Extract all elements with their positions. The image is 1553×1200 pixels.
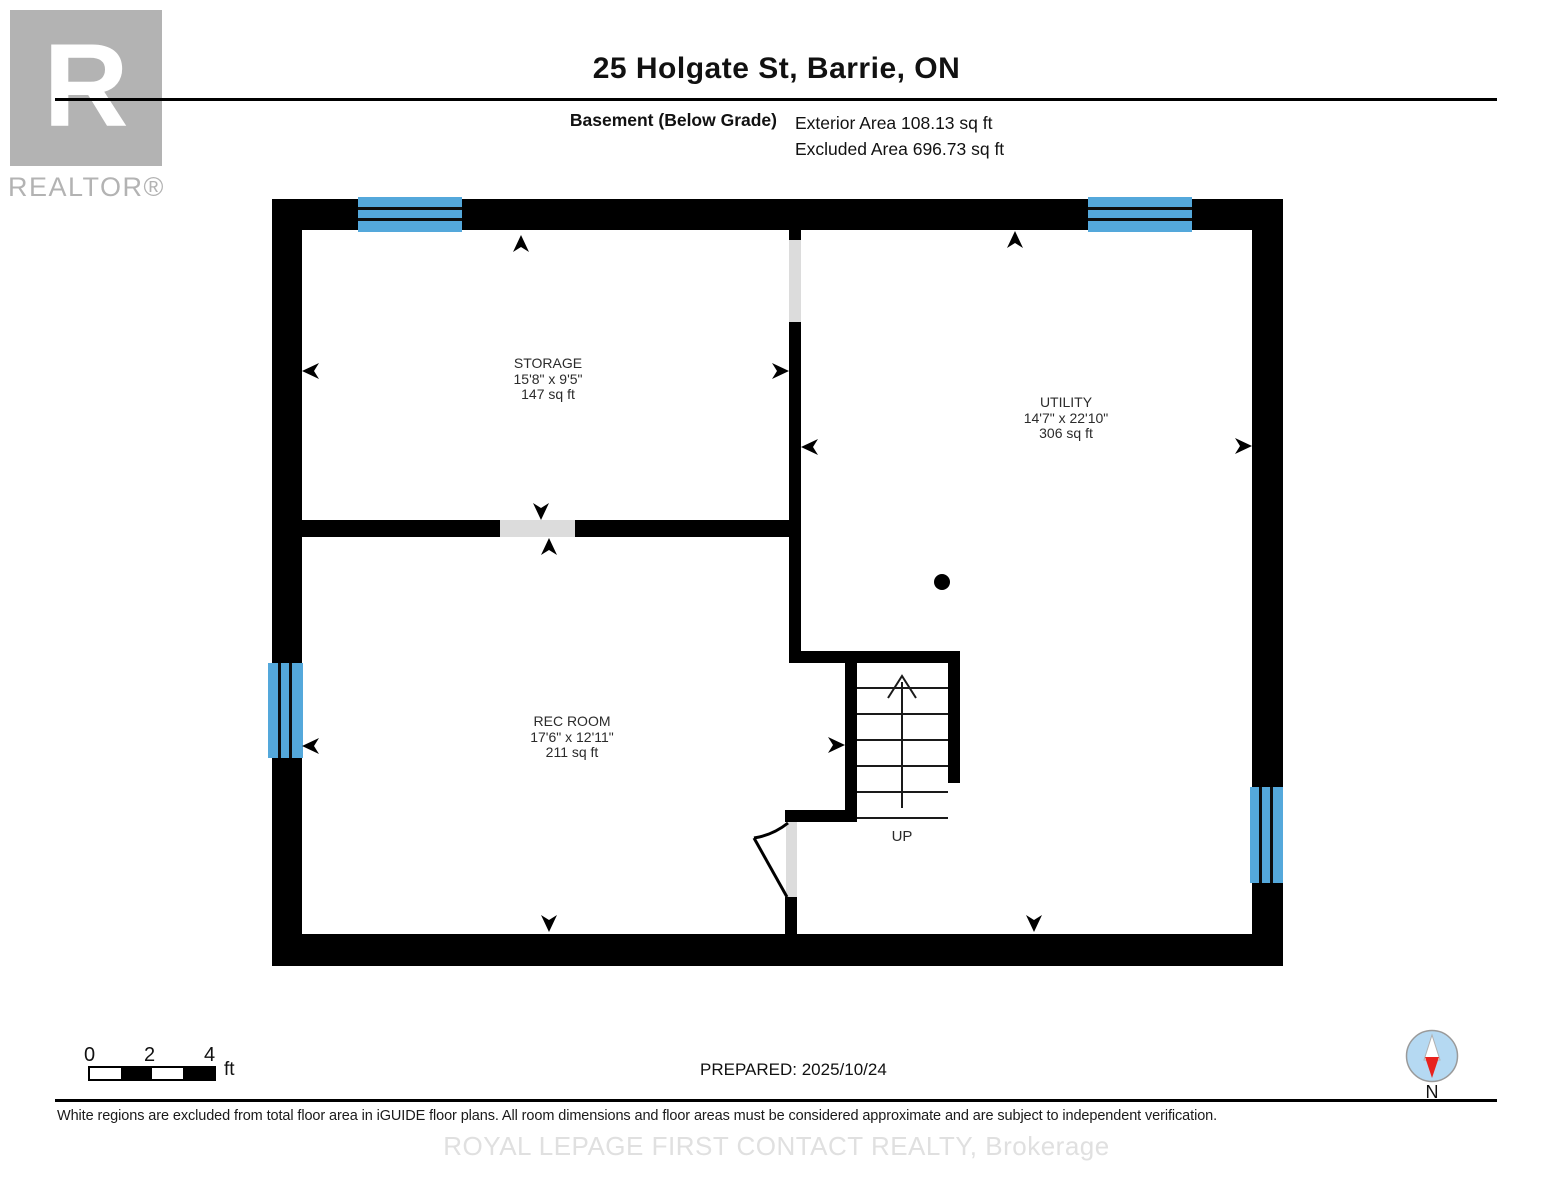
realtor-logo-label: REALTOR®	[8, 172, 198, 203]
window-pane-line	[289, 663, 292, 758]
scale-unit-label: ft	[224, 1059, 235, 1081]
room-label-utility: UTILITY 14'7" x 22'10" 306 sq ft	[956, 395, 1176, 442]
brokerage-watermark: ROYAL LEPAGE FIRST CONTACT REALTY, Broke…	[0, 1131, 1553, 1162]
utility-dot	[934, 574, 950, 590]
room-area: 211 sq ft	[462, 745, 682, 761]
dimension-arrow-left	[302, 363, 319, 379]
window-pane-line	[1088, 207, 1192, 210]
wall-partition-horizontal-right	[575, 520, 789, 537]
wall-bottom	[272, 934, 1283, 966]
stair-wall-left	[845, 663, 857, 820]
floor-label: Basement (Below Grade)	[400, 110, 777, 131]
stair-up-arrow	[888, 676, 916, 808]
wall-partition-horizontal-left	[302, 520, 500, 537]
dimension-arrow-right	[772, 363, 789, 379]
footer-divider	[55, 1099, 1497, 1102]
room-dimensions: 17'6" x 12'11"	[462, 730, 682, 746]
window-left	[268, 663, 303, 758]
plan-annotations	[0, 0, 1553, 1200]
exterior-area: Exterior Area 108.13 sq ft	[795, 110, 1004, 136]
wall-stub-below-door	[785, 897, 797, 934]
room-name: REC ROOM	[462, 714, 682, 730]
compass-circle	[1407, 1031, 1458, 1082]
dimension-arrow-down	[1026, 915, 1042, 932]
dimension-arrow-down	[541, 915, 557, 932]
dimension-arrow-right	[1235, 438, 1252, 454]
stair-wall-right	[948, 663, 960, 783]
scale-bar-segment	[90, 1068, 121, 1079]
scale-tick-4: 4	[204, 1044, 215, 1067]
window-right	[1250, 787, 1283, 883]
page-title: 25 Holgate St, Barrie, ON	[0, 52, 1553, 86]
window-pane-line	[1270, 787, 1273, 883]
room-dimensions: 15'8" x 9'5"	[438, 372, 658, 388]
room-label-storage: STORAGE 15'8" x 9'5" 147 sq ft	[438, 356, 658, 403]
wall-partition-vertical	[789, 322, 801, 663]
scale-tick-0: 0	[84, 1044, 95, 1067]
window-pane-line	[358, 207, 462, 210]
realtor-logo: R	[10, 10, 162, 166]
title-divider	[55, 98, 1497, 101]
prepared-date: PREPARED: 2025/10/24	[700, 1060, 887, 1080]
dimension-arrow-left	[302, 738, 319, 754]
excluded-area: Excluded Area 696.73 sq ft	[795, 136, 1004, 162]
doorway-storage-recroom	[500, 520, 575, 537]
scale-bar-segment	[121, 1068, 152, 1079]
dimension-arrow-up	[541, 538, 557, 555]
dimension-arrow-down	[533, 503, 549, 520]
window-pane-line	[358, 218, 462, 221]
dimension-arrow-right	[828, 737, 845, 753]
realtor-logo-r: R	[43, 27, 128, 145]
wall-stub-left-of-stairs	[785, 810, 857, 822]
dimension-arrow-up	[1007, 231, 1023, 248]
wall-partition-vertical-stub	[789, 230, 801, 240]
disclaimer-text: White regions are excluded from total fl…	[57, 1108, 1257, 1124]
dimension-arrow-up	[513, 235, 529, 252]
window-pane-line	[278, 663, 281, 758]
door-swing	[754, 823, 788, 897]
floorplan-page: R REALTOR® 25 Holgate St, Barrie, ON Bas…	[0, 0, 1553, 1200]
compass-needle-south	[1425, 1057, 1439, 1078]
scale-bar-segment	[183, 1068, 214, 1079]
compass-needle-north	[1424, 1035, 1440, 1060]
scale-bar-segment	[152, 1068, 183, 1079]
scale-bar	[88, 1066, 216, 1081]
compass	[1404, 1028, 1460, 1084]
room-name: UTILITY	[956, 395, 1176, 411]
room-name: STORAGE	[438, 356, 658, 372]
doorway-recroom	[786, 822, 797, 897]
window-pane-line	[1259, 787, 1262, 883]
area-summary: Exterior Area 108.13 sq ft Excluded Area…	[795, 110, 1004, 162]
window-top-left	[358, 197, 462, 232]
scale-tick-2: 2	[144, 1044, 155, 1067]
stair-wall-top	[789, 651, 960, 663]
dimension-arrows	[302, 231, 1252, 932]
doorway-storage-utility	[789, 240, 801, 322]
window-top-right	[1088, 197, 1192, 232]
window-pane-line	[1088, 218, 1192, 221]
stairs-up-label: UP	[871, 828, 933, 845]
dimension-arrow-left	[801, 439, 818, 455]
stair-treads	[857, 688, 948, 818]
room-label-rec-room: REC ROOM 17'6" x 12'11" 211 sq ft	[462, 714, 682, 761]
room-area: 147 sq ft	[438, 387, 658, 403]
wall-left	[272, 199, 302, 966]
room-area: 306 sq ft	[956, 426, 1176, 442]
room-dimensions: 14'7" x 22'10"	[956, 411, 1176, 427]
